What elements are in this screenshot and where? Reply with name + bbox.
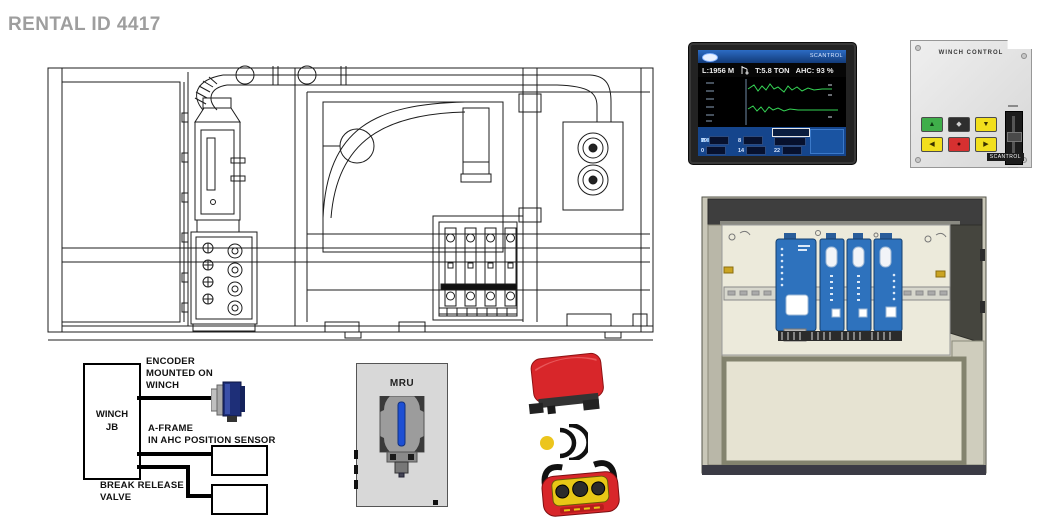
mru-label: MRU (357, 378, 447, 389)
hmi-field-1[interactable]: 79 (701, 136, 729, 145)
brake-valve-box (211, 484, 268, 515)
hmi-screen[interactable]: SCANTROL L:1956 M T:5.8 TON AHC: 93 % (698, 50, 846, 156)
encoder-label: ENCODER MOUNTED ON WINCH (146, 356, 213, 392)
brake-wire-h1 (137, 465, 190, 469)
green-button[interactable]: ▲ (921, 117, 943, 132)
aframe-wire (137, 452, 211, 456)
panel-button-grid: ▲ ◆ ▼ ◀ ● ▶ (921, 117, 997, 152)
aframe-sensor-box (211, 445, 268, 476)
hmi-side-panel (810, 129, 844, 154)
mru-tab (354, 480, 358, 489)
control-cabinet (700, 191, 988, 481)
din-module-3 (847, 233, 871, 331)
brake-label: BREAK RELEASE VALVE (100, 480, 184, 504)
yellow-down-button[interactable]: ▼ (975, 117, 997, 132)
mru-tab (354, 450, 358, 459)
red-stop-button[interactable]: ● (948, 137, 970, 152)
din-module-4 (874, 233, 902, 331)
yellow-left-button[interactable]: ◀ (921, 137, 943, 152)
winch-control-panel: WINCH CONTROL ▲ ◆ ▼ ◀ ● ▶ SCANTROL (910, 40, 1032, 168)
radio-receiver (522, 348, 613, 423)
mru-mark (433, 500, 438, 505)
screw-icon (1021, 53, 1027, 59)
hmi-logo-icon (702, 53, 718, 62)
mru-sensor (379, 396, 425, 480)
mru-panel: MRU (356, 363, 448, 507)
cabinet-door (724, 359, 964, 463)
rental-overview-page: RENTAL ID 4417 (0, 0, 1062, 531)
slider-top-mark (1008, 105, 1018, 107)
page-title: RENTAL ID 4417 (8, 14, 161, 36)
encoder-wire (137, 396, 213, 400)
hmi-field-6[interactable]: 22 (774, 146, 802, 155)
ahc-readout: AHC: 93 % (796, 66, 834, 75)
aframe-label: A-FRAME IN AHC POSITION SENSOR (148, 423, 276, 447)
din-module-1 (776, 233, 816, 341)
black-function-button[interactable]: ◆ (948, 117, 970, 132)
screw-icon (915, 157, 921, 163)
ahc-hmi-display: SCANTROL L:1956 M T:5.8 TON AHC: 93 % (688, 42, 857, 165)
winch-skid-cad-drawing (45, 58, 657, 345)
tension-readout: T:5.8 TON (755, 66, 789, 75)
yellow-right-button[interactable]: ▶ (975, 137, 997, 152)
mru-tab (354, 465, 358, 474)
hmi-mode-selector[interactable] (772, 128, 810, 137)
hmi-control-panel: 79 8 0 14 22 (698, 127, 846, 156)
din-module-2 (820, 233, 844, 331)
panel-title: WINCH CONTROL (911, 50, 1031, 56)
hmi-header-bar: SCANTROL (698, 50, 846, 63)
remote-joystick (591, 481, 605, 495)
heave-trace-graph (698, 77, 846, 127)
panel-brand-logo: SCANTROL (987, 153, 1024, 161)
hmi-field-5[interactable]: 14 (738, 146, 766, 155)
depth-readout: L:1956 M (702, 66, 734, 75)
slider-bottom-mark (1008, 167, 1018, 169)
slider-knob[interactable] (1007, 132, 1022, 142)
wireless-signal-icon (536, 424, 588, 460)
hmi-field-3[interactable] (774, 137, 806, 146)
hmi-brand-text: SCANTROL (810, 53, 843, 59)
winch-jb-box: WINCH JB (83, 363, 141, 480)
hmi-readout-row: L:1956 M T:5.8 TON AHC: 93 % (698, 63, 846, 77)
screw-icon (915, 45, 921, 51)
brake-wire-h2 (186, 494, 211, 498)
winch-encoder (211, 377, 247, 423)
hmi-field-4[interactable]: 0 (701, 146, 726, 155)
radio-remote-control (531, 452, 628, 522)
hmi-field-2[interactable]: 8 (738, 136, 763, 145)
remote-joystick (555, 485, 569, 499)
crane-icon (740, 65, 749, 75)
